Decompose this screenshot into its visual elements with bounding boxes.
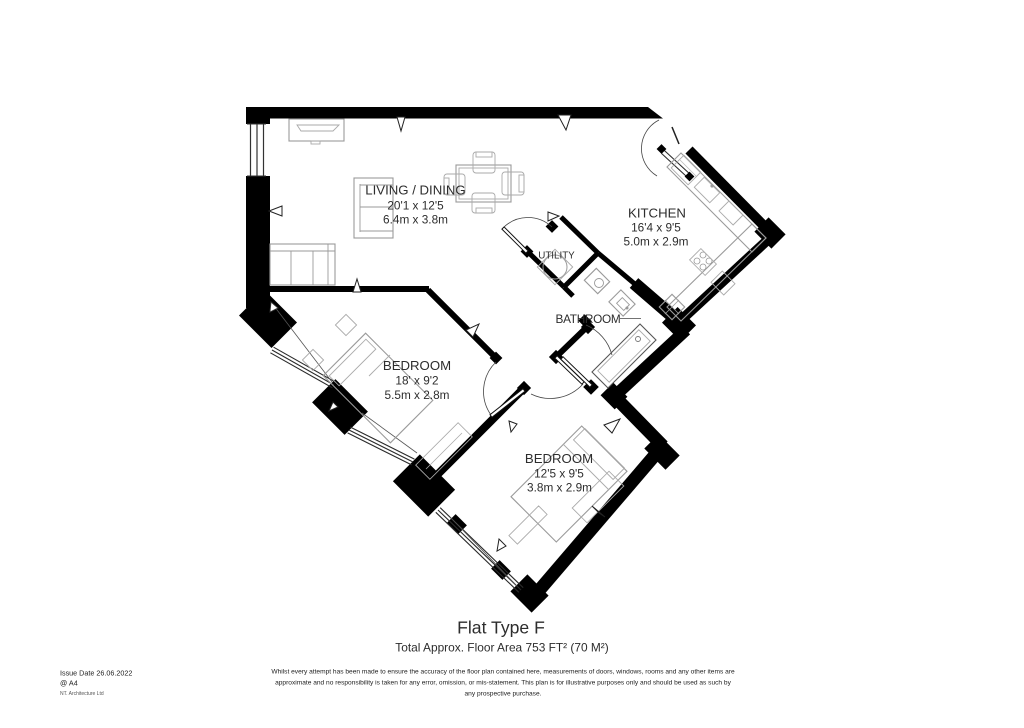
svg-text:KITCHEN: KITCHEN bbox=[628, 206, 686, 221]
svg-text:BATHROOM: BATHROOM bbox=[556, 312, 621, 326]
svg-text:LIVING / DINING: LIVING / DINING bbox=[365, 183, 465, 198]
svg-text:Issue Date 26.06.2022: Issue Date 26.06.2022 bbox=[60, 669, 132, 678]
svg-text:3.8m x 2.9m: 3.8m x 2.9m bbox=[527, 481, 592, 495]
svg-text:BEDROOM: BEDROOM bbox=[383, 358, 451, 373]
svg-text:16'4 x 9'5: 16'4 x 9'5 bbox=[631, 221, 681, 235]
svg-text:5.5m x 2.8m: 5.5m x 2.8m bbox=[385, 388, 450, 402]
svg-text:UTILITY: UTILITY bbox=[538, 251, 575, 262]
svg-text:any prospective purchase.: any prospective purchase. bbox=[465, 691, 542, 698]
svg-text:@ A4: @ A4 bbox=[60, 679, 78, 688]
svg-text:Total Approx. Floor Area 753 F: Total Approx. Floor Area 753 FT² (70 M²) bbox=[395, 641, 608, 655]
svg-text:5.0m x 2.9m: 5.0m x 2.9m bbox=[624, 235, 689, 249]
svg-text:6.4m x 3.8m: 6.4m x 3.8m bbox=[383, 213, 448, 227]
svg-text:BEDROOM: BEDROOM bbox=[525, 451, 593, 466]
svg-text:12'5 x 9'5: 12'5 x 9'5 bbox=[534, 467, 584, 481]
svg-text:20'1 x 12'5: 20'1 x 12'5 bbox=[387, 199, 444, 213]
svg-text:approximate and no responsibil: approximate and no responsibility is tak… bbox=[275, 680, 732, 687]
svg-text:Whilst every attempt has been: Whilst every attempt has been made to en… bbox=[271, 669, 735, 676]
svg-text:NT. Architecture Ltd: NT. Architecture Ltd bbox=[60, 691, 104, 697]
svg-text:Flat Type F: Flat Type F bbox=[457, 618, 545, 638]
svg-text:18' x 9'2: 18' x 9'2 bbox=[395, 374, 438, 388]
